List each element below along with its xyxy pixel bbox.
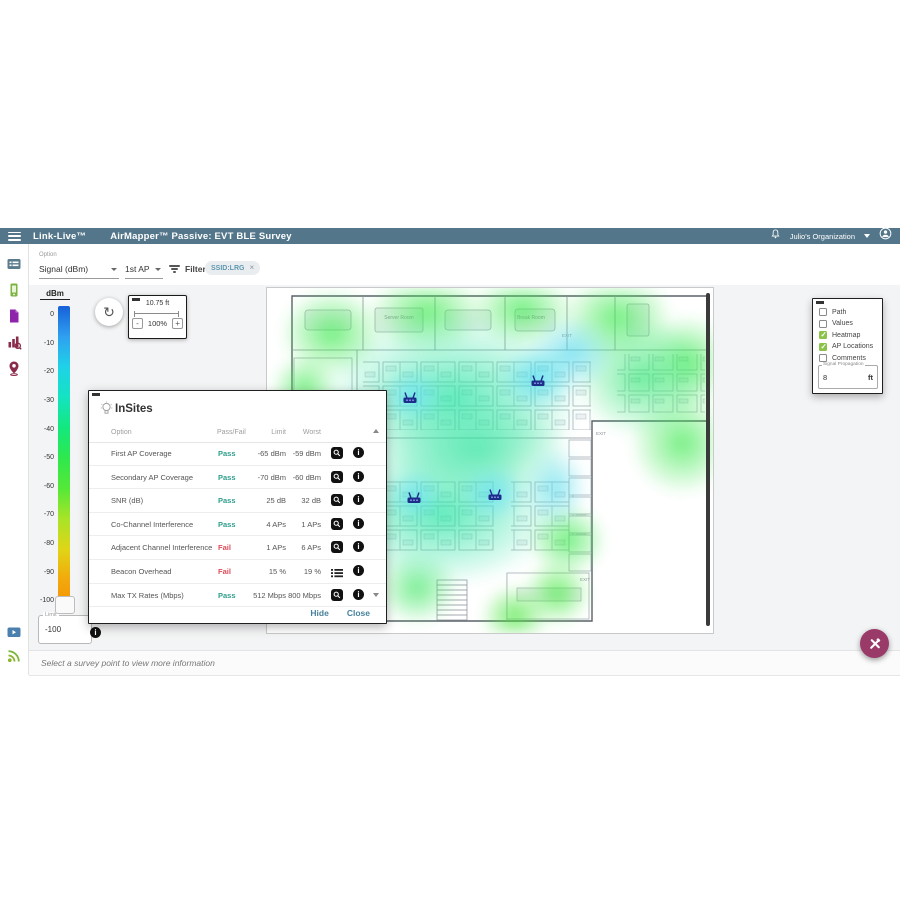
- search-icon[interactable]: [331, 589, 343, 601]
- scroll-up-icon[interactable]: [373, 429, 379, 433]
- search-icon[interactable]: [331, 541, 343, 553]
- option-cell: Secondary AP Coverage: [111, 473, 193, 482]
- org-switcher[interactable]: Julio's Organization: [790, 232, 855, 241]
- results-list-icon[interactable]: [6, 256, 22, 272]
- info-icon[interactable]: i: [353, 565, 364, 576]
- close-icon[interactable]: ×: [249, 264, 254, 272]
- status-message: Select a survey point to view more infor…: [41, 658, 215, 668]
- scale-tick: -70: [28, 511, 54, 518]
- column-header: Option: [111, 429, 132, 436]
- ap-location-icon[interactable]: [406, 491, 422, 503]
- panel-drag-handle[interactable]: [816, 301, 824, 304]
- worst-cell: -60 dBm: [293, 473, 321, 482]
- zoom-in-button[interactable]: +: [172, 318, 183, 329]
- table-row: Co-Channel Interference Pass 4 APs 1 APs…: [89, 513, 386, 537]
- list-icon[interactable]: [331, 566, 343, 576]
- table-row: SNR (dB) Pass 25 dB 32 dB i: [89, 489, 386, 513]
- info-icon[interactable]: i: [353, 589, 364, 600]
- ap-location-icon[interactable]: [402, 391, 418, 403]
- option-cell: Beacon Overhead: [111, 567, 171, 576]
- info-icon[interactable]: i: [353, 541, 364, 552]
- scale-tick: -40: [28, 426, 54, 433]
- insites-table: First AP Coverage Pass -65 dBm -59 dBm i…: [89, 442, 386, 607]
- layer-toggle-heatmap[interactable]: Heatmap: [819, 330, 860, 340]
- limit-cell: 25 dB: [266, 496, 286, 505]
- option-cell: SNR (dB): [111, 496, 143, 505]
- tools-fab-button[interactable]: [860, 629, 889, 658]
- room-label: Server Room: [384, 315, 413, 321]
- status-cell: Fail: [218, 567, 231, 576]
- limit-input-box[interactable]: Limit -100: [38, 615, 92, 644]
- scale-tick: -60: [28, 483, 54, 490]
- scale-zoom-panel: 10.75 ft - 100% +: [128, 295, 187, 339]
- layer-toggle-ap-locations[interactable]: AP Locations: [819, 342, 873, 352]
- insites-title: InSites: [115, 403, 153, 415]
- info-icon[interactable]: i: [353, 494, 364, 505]
- hide-button[interactable]: Hide: [310, 608, 328, 618]
- scale-tick: -100: [28, 597, 54, 604]
- limit-cell: -65 dBm: [258, 449, 286, 458]
- layer-toggle-path[interactable]: Path: [819, 307, 846, 317]
- zoom-level: 100%: [148, 319, 167, 328]
- info-icon[interactable]: i: [353, 471, 364, 482]
- limit-cell: 512 Mbps: [253, 591, 286, 600]
- close-button[interactable]: Close: [347, 608, 370, 618]
- left-nav-sidebar: [0, 244, 29, 675]
- table-row: Beacon Overhead Fail 15 % 19 % i: [89, 560, 386, 584]
- limit-value[interactable]: -100: [45, 625, 61, 634]
- signal-propagation-unit: ft: [868, 373, 873, 382]
- tools-icon: [868, 637, 882, 651]
- checkbox[interactable]: [819, 308, 827, 316]
- device-icon[interactable]: [6, 282, 22, 298]
- exit-label: EXIT: [596, 431, 606, 436]
- map-scale-text: 10.75 ft: [129, 300, 186, 307]
- page-title: AirMapper™ Passive: EVT BLE Survey: [110, 231, 292, 242]
- scale-tick: -50: [28, 454, 54, 461]
- video-icon[interactable]: [6, 624, 22, 640]
- worst-cell: 800 Mbps: [288, 591, 321, 600]
- search-icon[interactable]: [331, 494, 343, 506]
- signal-propagation-input[interactable]: Signal Propagation 8 ft: [818, 365, 878, 389]
- status-bar: Select a survey point to view more infor…: [29, 650, 900, 676]
- insites-panel: InSites Option Pass/Fail Limit Worst Fir…: [88, 390, 387, 624]
- limit-cell: -70 dBm: [258, 473, 286, 482]
- filter-icon: [169, 265, 180, 273]
- option-cell: Adjacent Channel Interference: [111, 543, 212, 552]
- scroll-down-icon[interactable]: [373, 593, 379, 597]
- info-icon[interactable]: i: [90, 627, 101, 638]
- account-icon[interactable]: [879, 227, 892, 245]
- search-icon[interactable]: [331, 447, 343, 459]
- worst-cell: 1 APs: [301, 520, 321, 529]
- zoom-out-button[interactable]: -: [132, 318, 143, 329]
- brand-logo[interactable]: Link-Live™: [33, 231, 86, 242]
- table-row: Secondary AP Coverage Pass -70 dBm -60 d…: [89, 466, 386, 490]
- page: Link-Live™ AirMapper™ Passive: EVT BLE S…: [0, 0, 900, 900]
- option-cell: Co-Channel Interference: [111, 520, 193, 529]
- rss-icon[interactable]: [6, 648, 22, 664]
- checkbox[interactable]: [819, 320, 827, 328]
- room-label: Break Room: [517, 315, 545, 321]
- worst-cell: 19 %: [304, 567, 321, 576]
- bell-icon[interactable]: [770, 227, 781, 245]
- column-header: Limit: [271, 429, 286, 436]
- ssid-filter-chip[interactable]: SSID:LRG ×: [205, 261, 260, 275]
- scale-limit-slider[interactable]: [55, 596, 75, 614]
- map-vertical-scrollbar[interactable]: [706, 293, 710, 626]
- checkbox[interactable]: [819, 354, 827, 362]
- chart-search-icon[interactable]: [6, 334, 22, 350]
- scale-tick: -80: [28, 540, 54, 547]
- exit-label: EXIT: [562, 333, 572, 338]
- chevron-down-icon: [111, 268, 117, 271]
- refresh-button[interactable]: ↻: [95, 298, 123, 326]
- status-cell: Fail: [218, 543, 231, 552]
- scale-tick: -20: [28, 368, 54, 375]
- map-pin-icon[interactable]: [6, 360, 22, 376]
- layers-panel: Path Values Heatmap AP Locations Comment…: [812, 298, 883, 394]
- signal-propagation-value[interactable]: 8: [823, 373, 827, 382]
- info-icon[interactable]: i: [353, 518, 364, 529]
- option-cell: Max TX Rates (Mbps): [111, 591, 184, 600]
- table-row: Adjacent Channel Interference Fail 1 APs…: [89, 536, 386, 560]
- option-field-label: Option: [39, 252, 57, 258]
- limit-cell: 4 APs: [266, 520, 286, 529]
- layer-toggle-values[interactable]: Values: [819, 319, 853, 329]
- limit-cell: 1 APs: [266, 543, 286, 552]
- search-icon[interactable]: [331, 471, 343, 483]
- worst-cell: -59 dBm: [293, 449, 321, 458]
- scale-tick: -90: [28, 569, 54, 576]
- app-header: Link-Live™ AirMapper™ Passive: EVT BLE S…: [0, 228, 900, 244]
- scale-tick: -30: [28, 397, 54, 404]
- info-icon[interactable]: i: [353, 447, 364, 458]
- status-cell: Pass: [218, 591, 236, 600]
- worst-cell: 6 APs: [301, 543, 321, 552]
- map-scale-ruler: [134, 313, 179, 314]
- ap-location-icon[interactable]: [487, 488, 503, 500]
- table-header-row: Option Pass/Fail Limit Worst: [89, 424, 386, 443]
- filter-bar: Option Signal (dBm) 1st AP Filters SSID:…: [29, 244, 900, 285]
- status-cell: Pass: [218, 449, 236, 458]
- signal-metric-select[interactable]: Signal (dBm): [39, 260, 119, 279]
- ap-order-select[interactable]: 1st AP: [125, 260, 163, 279]
- lightbulb-icon: [100, 401, 113, 421]
- worst-cell: 32 dB: [301, 496, 321, 505]
- ap-location-icon[interactable]: [530, 374, 546, 386]
- column-header: Pass/Fail: [217, 429, 246, 436]
- signal-propagation-label: Signal Propagation: [822, 362, 865, 367]
- exit-label: EXIT: [580, 577, 590, 582]
- panel-drag-handle[interactable]: [92, 393, 100, 396]
- status-cell: Pass: [218, 473, 236, 482]
- chevron-down-icon: [155, 268, 161, 271]
- table-row: First AP Coverage Pass -65 dBm -59 dBm i: [89, 442, 386, 466]
- scale-tick: 0: [28, 311, 54, 318]
- scale-tick: -10: [28, 340, 54, 347]
- checkbox[interactable]: [819, 331, 827, 339]
- checkbox[interactable]: [819, 343, 827, 351]
- scale-unit-label: dBm: [40, 289, 70, 300]
- option-cell: First AP Coverage: [111, 449, 172, 458]
- limit-cell: 15 %: [269, 567, 286, 576]
- document-icon[interactable]: [6, 308, 22, 324]
- hamburger-menu-icon[interactable]: [8, 232, 21, 241]
- status-cell: Pass: [218, 496, 236, 505]
- status-cell: Pass: [218, 520, 236, 529]
- chevron-down-icon[interactable]: [864, 234, 870, 238]
- column-header: Worst: [303, 429, 321, 436]
- search-icon[interactable]: [331, 518, 343, 530]
- signal-color-scale: [58, 306, 70, 610]
